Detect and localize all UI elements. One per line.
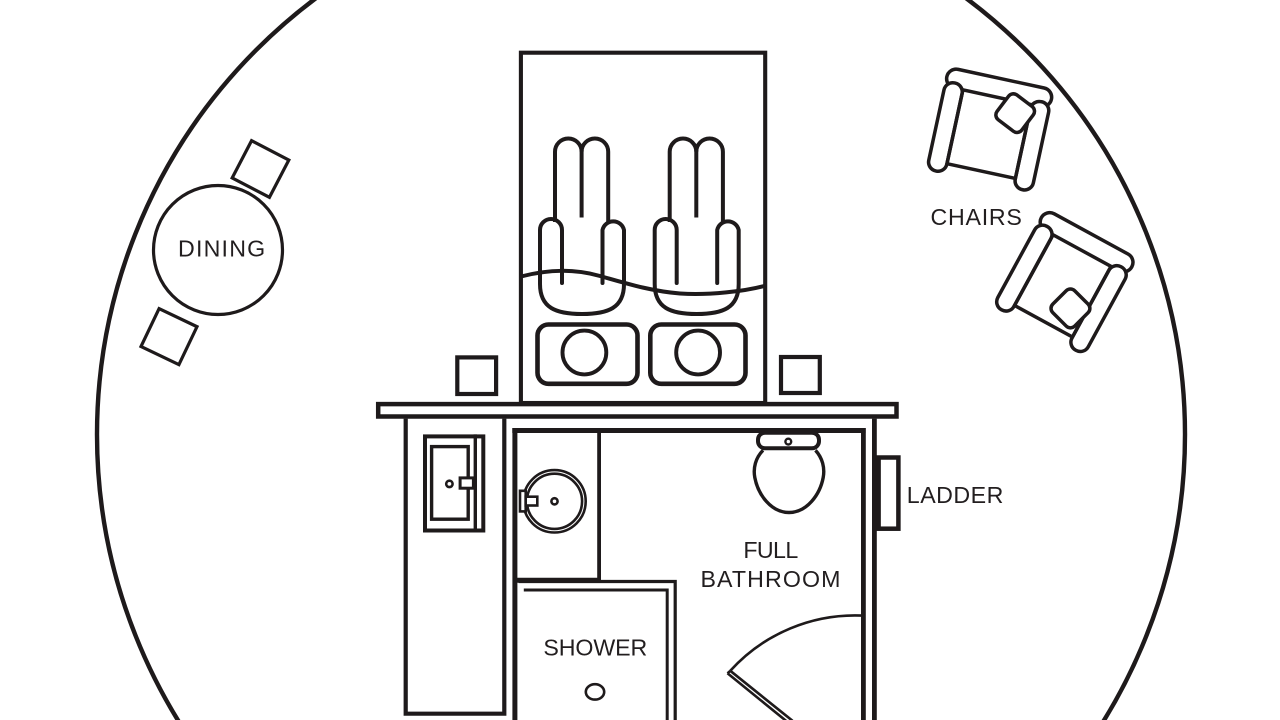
svg-text:LADDER: LADDER: [907, 482, 1004, 508]
svg-text:BATHROOM: BATHROOM: [700, 566, 841, 592]
svg-text:CHAIRS: CHAIRS: [931, 204, 1023, 230]
svg-text:FULL: FULL: [743, 537, 798, 563]
svg-text:SHOWER: SHOWER: [543, 634, 647, 660]
svg-text:DINING: DINING: [178, 236, 266, 262]
